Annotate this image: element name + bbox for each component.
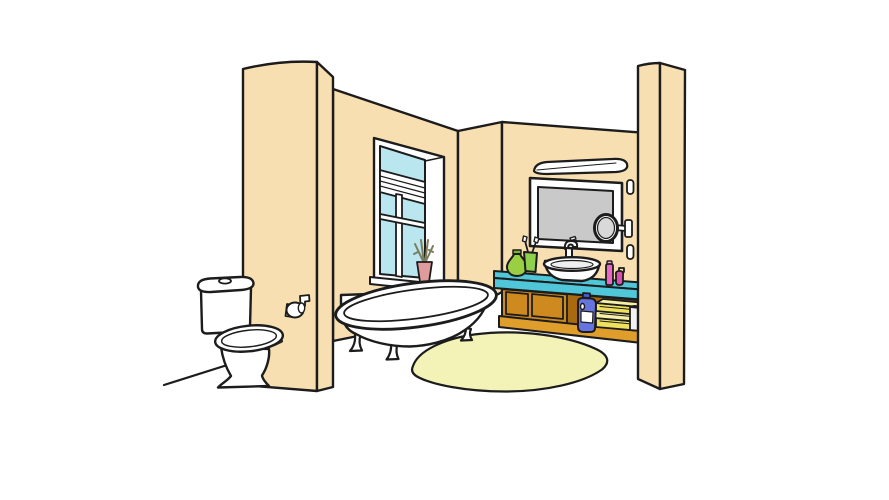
detergent-handle-hole	[581, 304, 585, 310]
toothbrush-2-head	[534, 237, 539, 243]
right-wall-pillar	[638, 63, 685, 389]
bathroom-scene-canvas	[0, 0, 889, 500]
window	[370, 138, 450, 292]
detergent-bottle	[578, 293, 596, 332]
magnifier-glass	[598, 218, 615, 239]
right-pillar-side-face	[638, 63, 660, 389]
flower-vase	[417, 262, 432, 282]
wall-capsule-top	[627, 180, 634, 194]
faucet-lever	[570, 237, 576, 241]
bathroom-illustration	[0, 0, 889, 500]
lotion-bottle	[606, 261, 613, 285]
cup-body	[524, 252, 537, 272]
toothbrush-1-head	[523, 236, 528, 242]
pump-body	[616, 271, 623, 285]
wall-capsule-bottom	[627, 245, 634, 259]
toilet-pedestal	[218, 347, 269, 388]
artwork	[164, 62, 685, 392]
window-mullion-vertical	[396, 194, 402, 277]
left-pillar-side-face	[317, 62, 333, 391]
magnifier-wall-plate	[625, 220, 632, 237]
tp-roll-end	[298, 303, 304, 313]
lotion-body	[606, 264, 613, 285]
basin-rim-inner	[551, 261, 593, 269]
right-pillar-front-face	[660, 63, 685, 389]
light-fixture	[534, 159, 627, 174]
toilet-flush-button	[219, 278, 231, 283]
detergent-label	[581, 311, 593, 323]
